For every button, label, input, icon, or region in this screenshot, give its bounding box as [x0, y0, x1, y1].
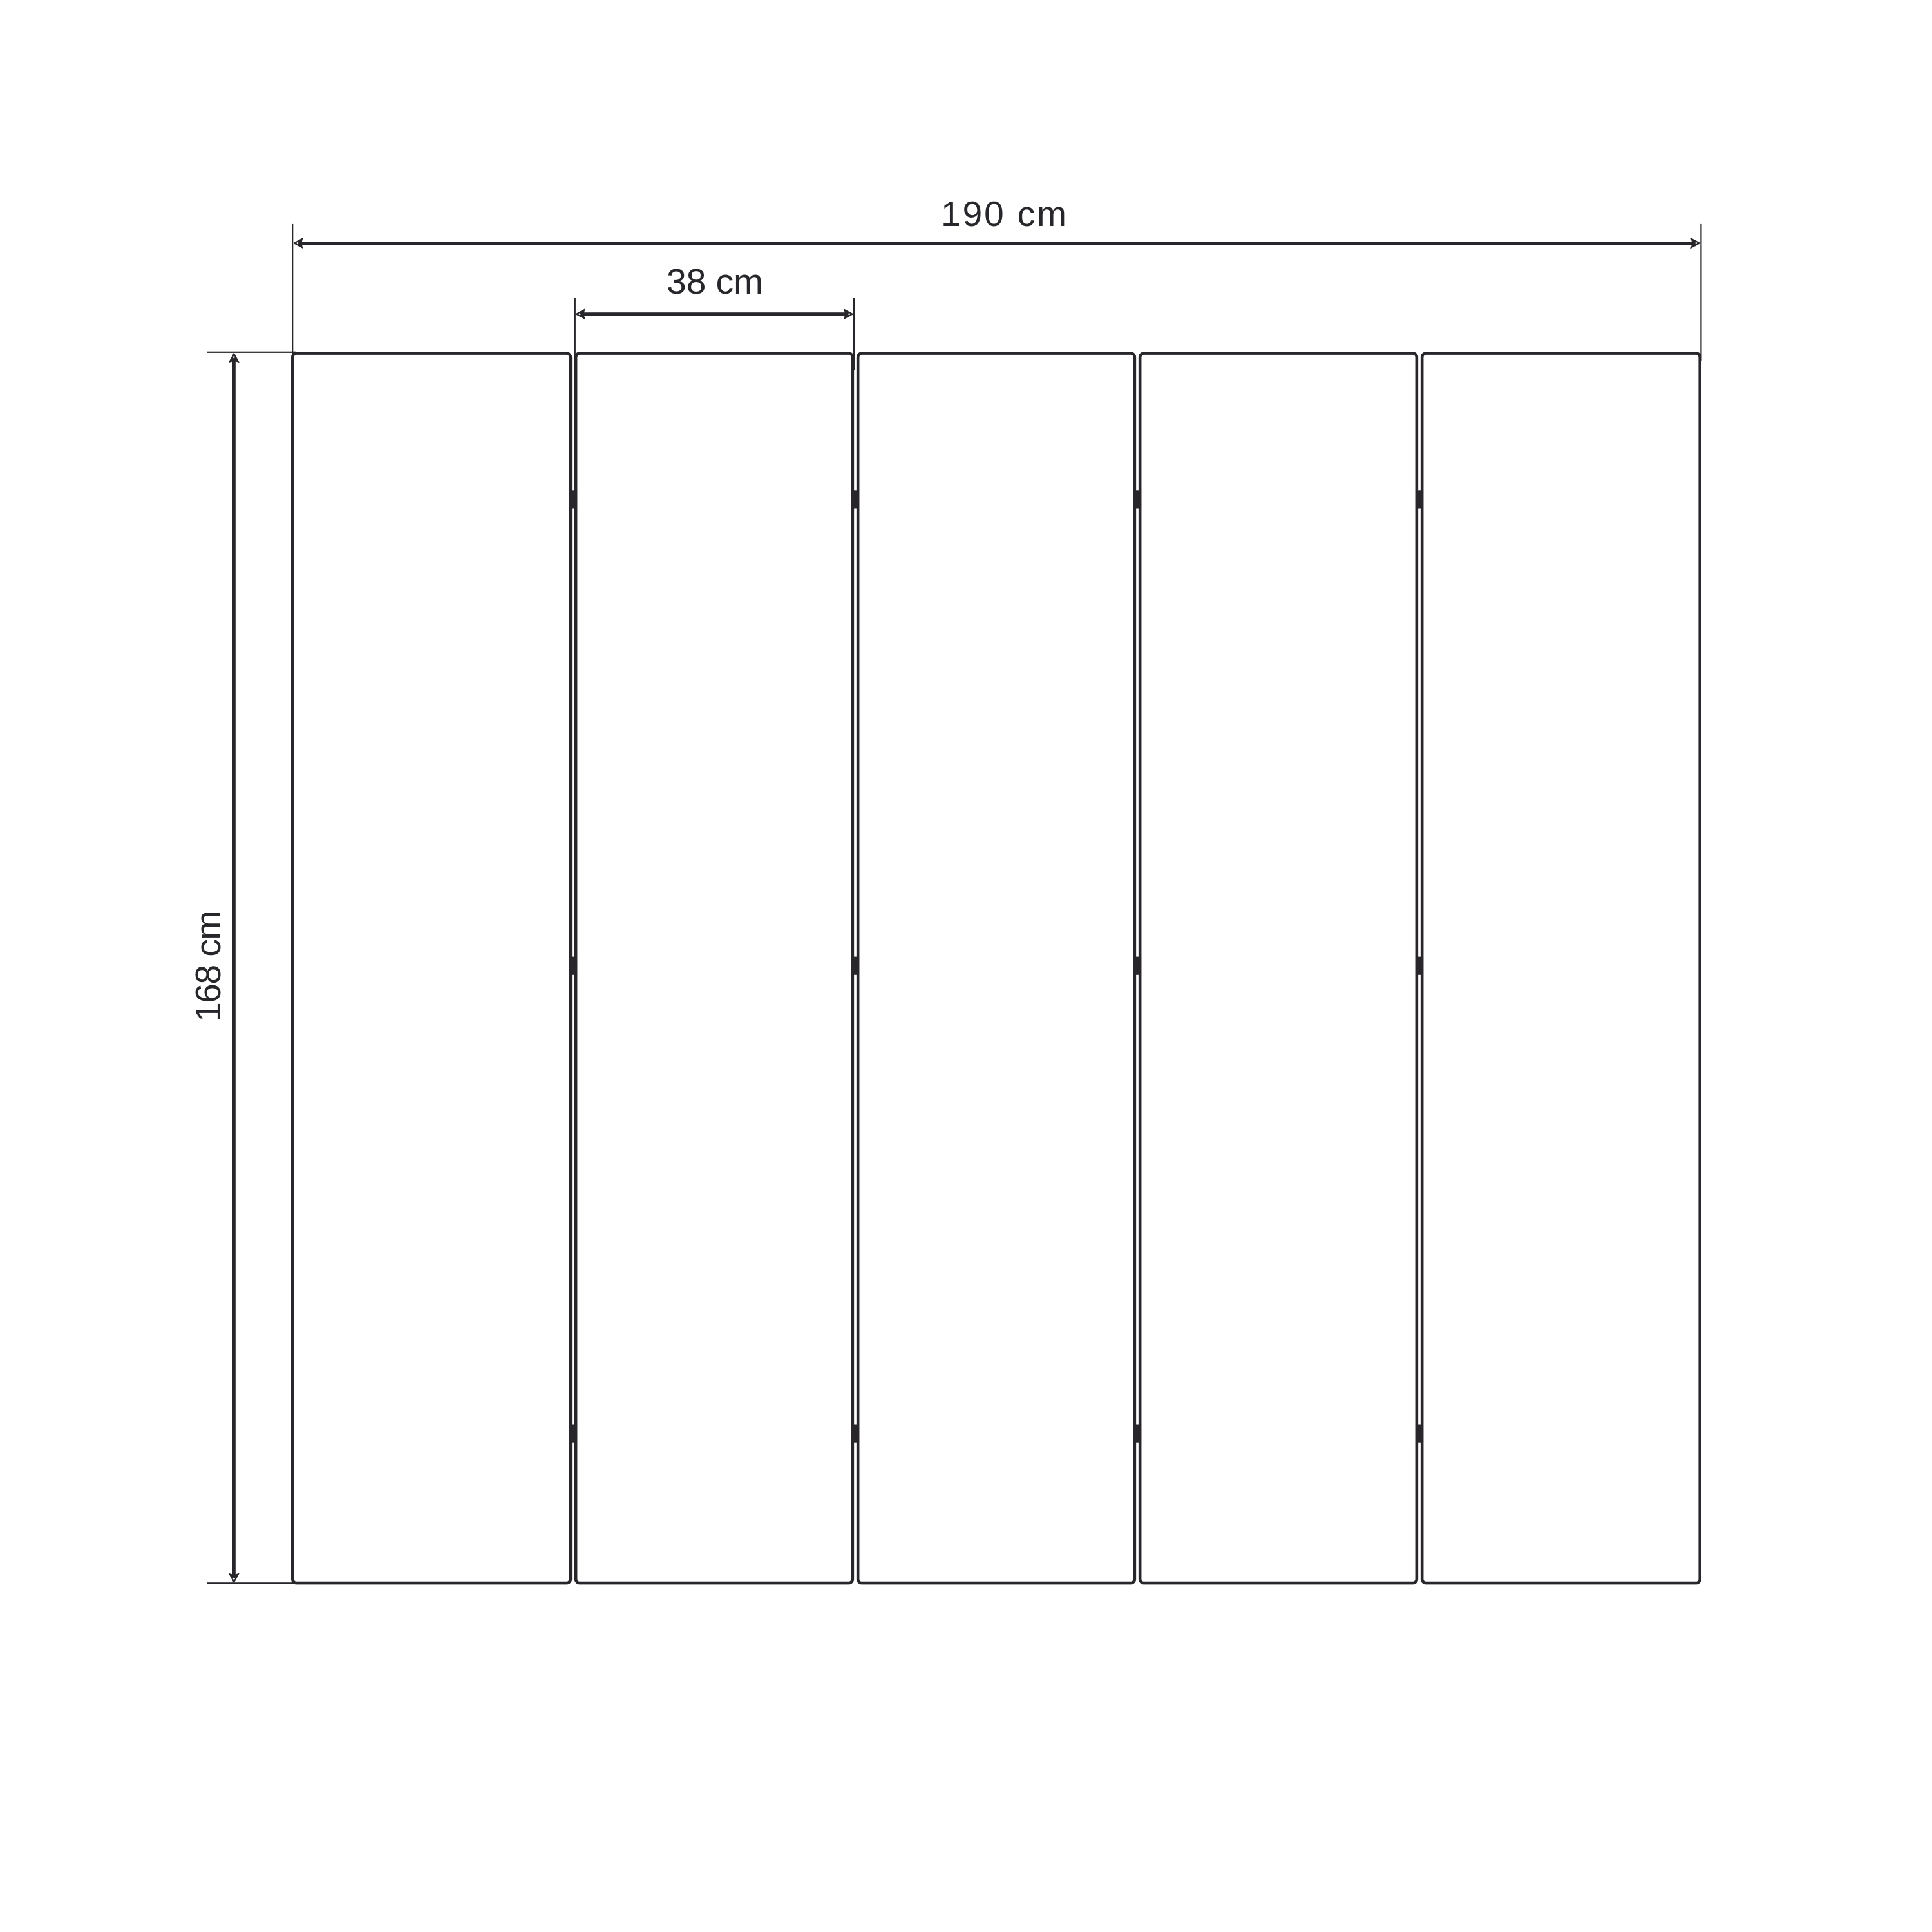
- svg-text:190 cm: 190 cm: [941, 194, 1068, 234]
- svg-text:168 cm: 168 cm: [188, 911, 228, 1021]
- svg-text:38 cm: 38 cm: [667, 261, 763, 301]
